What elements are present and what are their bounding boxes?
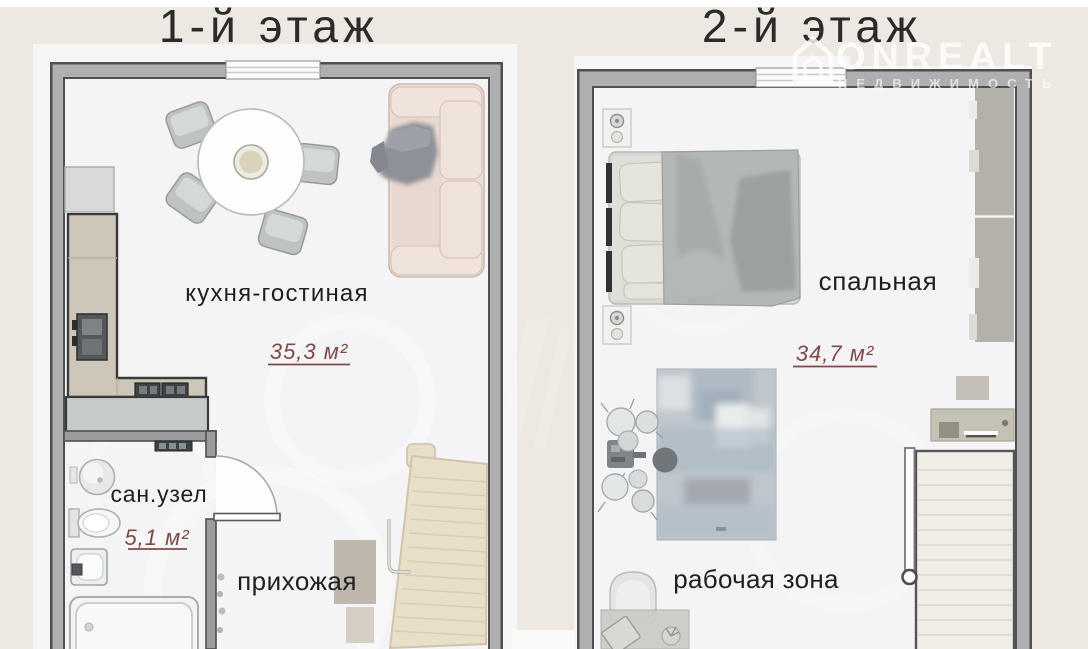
svg-text:5,1 м²: 5,1 м² — [124, 525, 189, 550]
svg-text:спальная: спальная — [819, 266, 938, 296]
svg-text:35,3 м²: 35,3 м² — [270, 339, 348, 364]
svg-text:рабочая зона: рабочая зона — [673, 564, 839, 594]
svg-text:прихожая: прихожая — [237, 566, 357, 596]
svg-text:сан.узел: сан.узел — [110, 481, 207, 507]
svg-text:кухня-гостиная: кухня-гостиная — [185, 280, 368, 307]
svg-text:НЕДВИЖИМОСТЬ: НЕДВИЖИМОСТЬ — [838, 76, 1060, 91]
svg-text:34,7 м²: 34,7 м² — [796, 341, 874, 366]
svg-text:1-й этаж: 1-й этаж — [159, 0, 379, 52]
svg-text:ONREALT: ONREALT — [836, 36, 1057, 78]
